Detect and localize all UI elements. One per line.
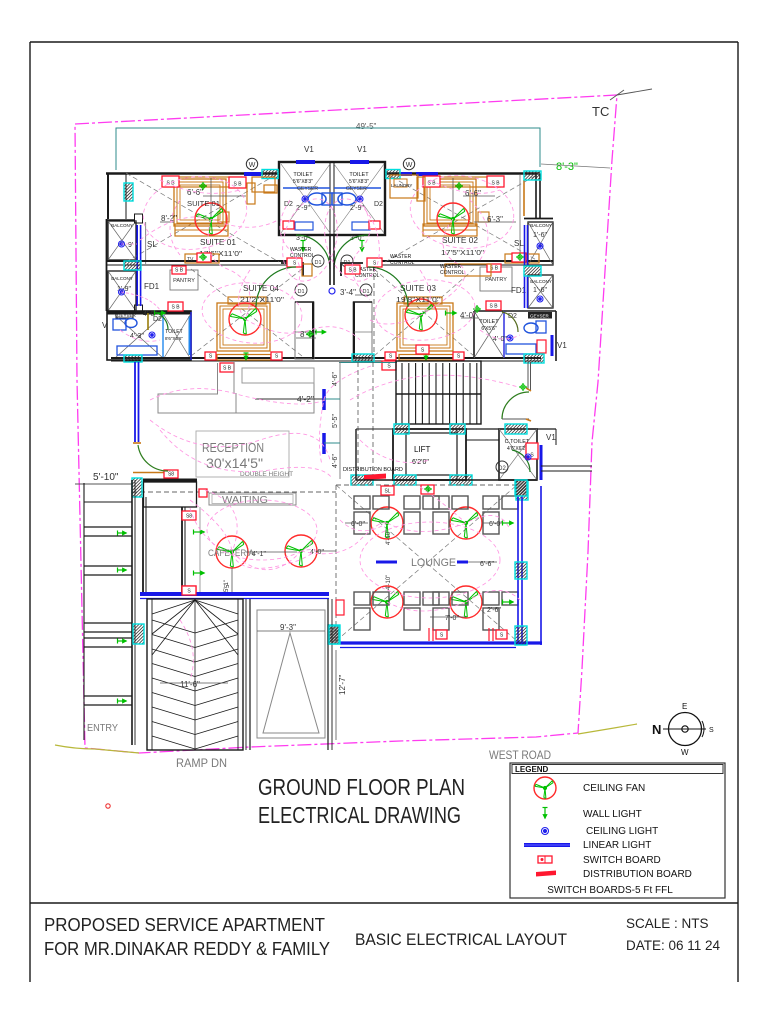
svg-text:6'-0": 6'-0" [351,521,365,528]
svg-text:PANTRY: PANTRY [173,278,195,284]
svg-text:4'-10": 4'-10" [386,575,392,590]
svg-text:V: V [102,321,108,330]
svg-text:S B: S B [171,305,180,311]
svg-text:5'-5": 5'-5" [332,414,339,428]
svg-text:SL: SL [147,240,157,249]
svg-text:D2: D2 [508,313,517,320]
svg-text:GEYSER: GEYSER [346,186,367,192]
svg-text:5'6"X8'3": 5'6"X8'3" [349,179,369,185]
svg-text:1'-6": 1'-6" [533,287,547,294]
svg-text:FOR MR.DINAKAR REDDY & FAMILY: FOR MR.DINAKAR REDDY & FAMILY [44,939,330,959]
svg-text:21'2"X11'0": 21'2"X11'0" [240,297,285,304]
svg-text:RECEPTION: RECEPTION [202,441,264,455]
svg-text:S: S [709,727,714,734]
svg-text:49'-5": 49'-5" [356,122,377,131]
svg-text:TOILET: TOILET [293,172,313,178]
svg-text:TOILET: TOILET [349,172,369,178]
svg-text:V1: V1 [557,341,567,350]
svg-text:4'-0": 4'-0" [143,311,157,318]
svg-text:SWITCH BOARDS-5 Ft FFL: SWITCH BOARDS-5 Ft FFL [547,885,673,896]
svg-text:4'-10": 4'-10" [386,530,392,545]
svg-text:WEST ROAD: WEST ROAD [489,750,551,762]
svg-text:V1: V1 [357,145,367,154]
svg-text:S B: S B [223,366,232,372]
svg-text:S8: S8 [168,472,174,478]
svg-text:FD1: FD1 [144,282,160,291]
svg-text:SUITE 01: SUITE 01 [187,201,220,208]
svg-text:D1: D1 [314,260,321,266]
svg-text:SUITE 01: SUITE 01 [200,238,237,247]
svg-text:ELECTRICAL DRAWING: ELECTRICAL DRAWING [258,802,461,828]
svg-text:W: W [249,162,256,169]
svg-text:5'-10": 5'-10" [93,472,119,483]
svg-text:DISTRIBUTION BOARD: DISTRIBUTION BOARD [583,869,692,880]
svg-text:6'-0": 6'-0" [489,521,503,528]
svg-text:SL: SL [384,489,390,495]
svg-text:V1: V1 [304,145,314,154]
svg-text:S8: S8 [186,514,192,520]
svg-text:LIFT: LIFT [414,445,431,454]
svg-text:CONTROL: CONTROL [440,270,465,276]
svg-text:RAMP DN: RAMP DN [176,758,227,770]
svg-text:3'-4": 3'-4" [340,288,356,297]
svg-text:BALCONY: BALCONY [111,223,133,228]
svg-text:N: N [652,722,661,737]
svg-text:WALL LIGHT: WALL LIGHT [583,809,642,820]
svg-text:ENTRY: ENTRY [87,722,118,734]
svg-text:LOUNGE: LOUNGE [411,557,456,569]
svg-text:LAUNDRY: LAUNDRY [391,183,412,188]
svg-text:S B: S B [489,304,498,310]
svg-text:S B: S B [175,268,184,274]
svg-text:30'x14'5": 30'x14'5" [206,455,263,471]
svg-text:CEILING FAN: CEILING FAN [583,783,645,794]
svg-text:BALCONY: BALCONY [530,223,552,228]
svg-text:CONTROL: CONTROL [390,260,415,266]
svg-text:W: W [681,748,689,757]
svg-text:5'6"X8'3": 5'6"X8'3" [293,179,313,185]
svg-text:V1: V1 [546,433,556,442]
svg-text:BALCONY: BALCONY [111,276,133,281]
svg-text:D2: D2 [498,466,506,472]
svg-text:4'-6": 4'-6" [332,372,339,386]
svg-text:6'-6": 6'-6" [480,561,494,568]
svg-text:E: E [682,702,687,711]
svg-text:1'-6": 1'-6" [533,232,547,239]
svg-text:2'-6": 2'-6" [487,607,501,614]
svg-text:9': 9' [128,242,133,249]
svg-text:12'-7": 12'-7" [338,674,347,695]
svg-text:4'-0": 4'-0" [310,549,324,556]
svg-text:11'-6": 11'-6" [180,680,200,689]
svg-text:DATE: 06 11 24: DATE: 06 11 24 [626,938,721,953]
svg-text:5': 5' [225,584,231,588]
svg-text:SWITCH BOARD: SWITCH BOARD [583,855,661,866]
svg-text:D1: D1 [362,289,369,295]
svg-text:D2: D2 [374,201,383,208]
svg-text:4'-0": 4'-0" [493,336,507,343]
svg-text:8'6"X5'6": 8'6"X5'6" [165,336,183,341]
svg-text:6'-3": 6'-3" [487,215,503,224]
svg-text:W: W [406,162,413,169]
svg-text:TC: TC [592,104,609,119]
svg-text:PANTRY: PANTRY [485,277,507,283]
svg-text:19'8"X11'0": 19'8"X11'0" [396,297,441,304]
svg-text:BALCONY: BALCONY [530,279,552,284]
svg-text:4'-3": 4'-3" [130,333,144,340]
svg-text:6'2'0": 6'2'0" [412,459,429,466]
svg-text:6'X5'6": 6'X5'6" [481,326,497,332]
svg-text:4'-0": 4'-0" [460,311,476,320]
svg-text:LINEAR LIGHT: LINEAR LIGHT [583,840,651,851]
svg-text:BASIC ELECTRICAL LAYOUT: BASIC ELECTRICAL LAYOUT [355,930,567,949]
svg-text:PROPOSED SERVICE APARTMENT: PROPOSED SERVICE APARTMENT [44,915,325,935]
svg-text:SCALE : NTS: SCALE : NTS [626,916,709,931]
svg-text:17'5"X11'0": 17'5"X11'0" [441,250,485,257]
svg-text:4'-6": 4'-6" [332,454,339,468]
svg-text:LEGEND: LEGEND [515,765,549,774]
svg-text:TOILET: TOILET [165,329,182,335]
svg-text:SUITE 02: SUITE 02 [442,236,479,245]
svg-text:8'-3": 8'-3" [556,161,578,173]
svg-text:DISTRIBUTION BOARD: DISTRIBUTION BOARD [343,467,403,473]
svg-text:S B: S B [491,181,500,187]
svg-text:TV: TV [187,257,194,263]
svg-text:D1: D1 [297,289,304,295]
svg-text:GEYSER: GEYSER [530,314,550,319]
svg-text:GEYSER: GEYSER [297,186,318,192]
svg-text:TOILET: TOILET [479,319,499,325]
svg-text:GROUND FLOOR PLAN: GROUND FLOOR PLAN [258,774,465,800]
svg-text:7'-0": 7'-0" [445,615,459,622]
svg-text:SL: SL [514,239,524,248]
svg-text:2'-9": 2'-9" [350,205,364,212]
svg-text:CEILING LIGHT: CEILING LIGHT [586,826,658,837]
